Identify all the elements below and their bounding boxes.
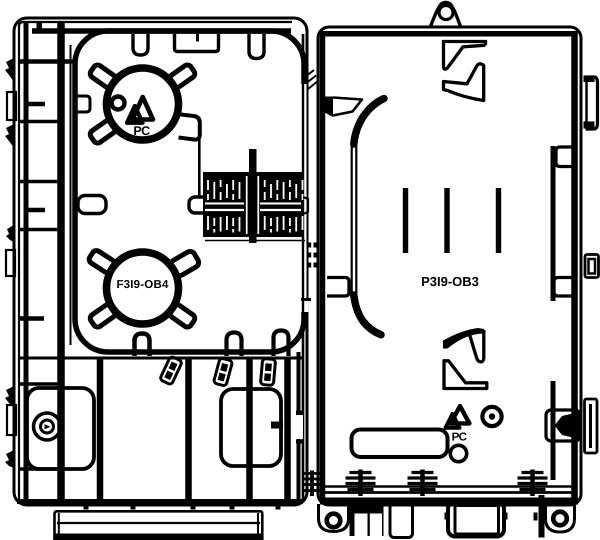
svg-text:PC: PC	[133, 124, 150, 138]
svg-text:F3I9-OB4: F3I9-OB4	[116, 279, 168, 291]
svg-text:P3I9-OB3: P3I9-OB3	[421, 274, 479, 289]
svg-text:PC: PC	[452, 432, 467, 444]
